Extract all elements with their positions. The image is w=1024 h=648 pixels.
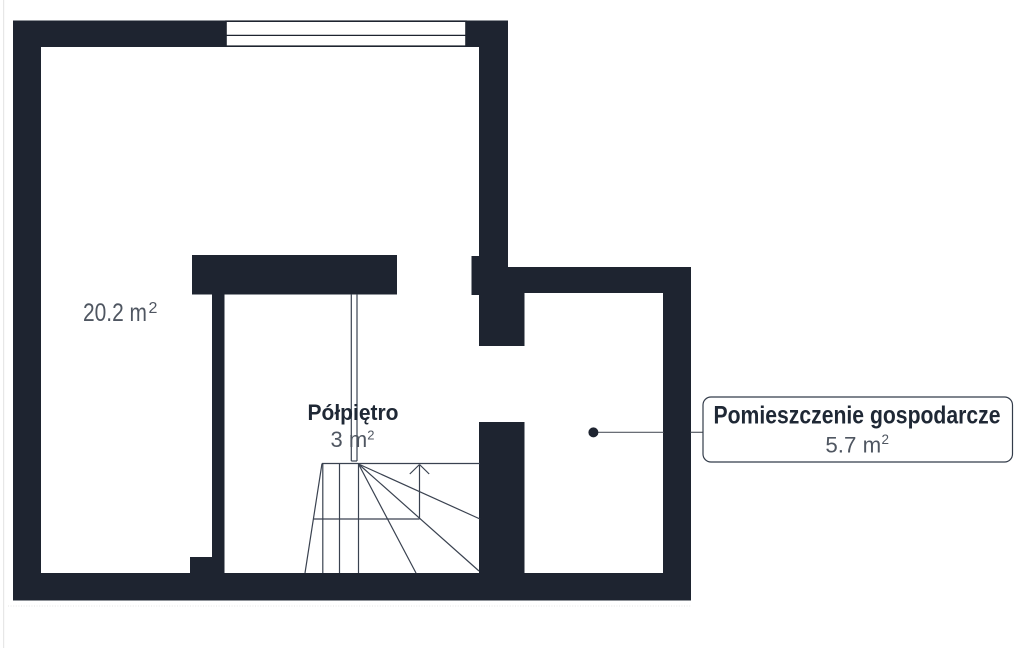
svg-text:2: 2 [149, 300, 158, 317]
svg-text:20.2 m: 20.2 m [83, 299, 147, 327]
svg-text:Pomieszczenie gospodarcze: Pomieszczenie gospodarcze [714, 402, 1001, 430]
svg-text:Półpiętro: Półpiętro [308, 400, 399, 425]
svg-text:2: 2 [882, 432, 890, 447]
svg-text:5.7 m: 5.7 m [825, 432, 881, 457]
svg-text:3 m: 3 m [331, 427, 368, 452]
svg-text:2: 2 [367, 428, 374, 443]
